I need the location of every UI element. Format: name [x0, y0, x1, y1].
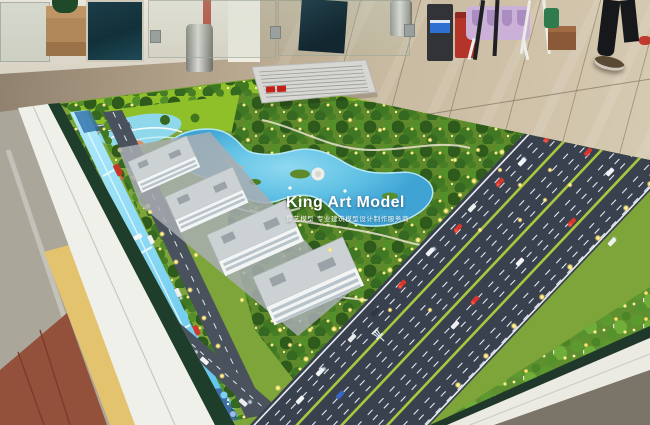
scale-model-scene: 平 — [0, 0, 650, 425]
showroom-photo: 平 — [0, 0, 650, 425]
glass-clamp — [404, 24, 415, 37]
boat — [343, 189, 346, 192]
glass-clamp — [150, 30, 161, 43]
dark-glass-reflection — [298, 0, 348, 54]
lake-island — [290, 170, 310, 179]
boat — [288, 186, 291, 189]
display-glass-panel — [148, 0, 276, 58]
lake-island — [382, 193, 398, 200]
glass-clamp — [270, 26, 281, 39]
